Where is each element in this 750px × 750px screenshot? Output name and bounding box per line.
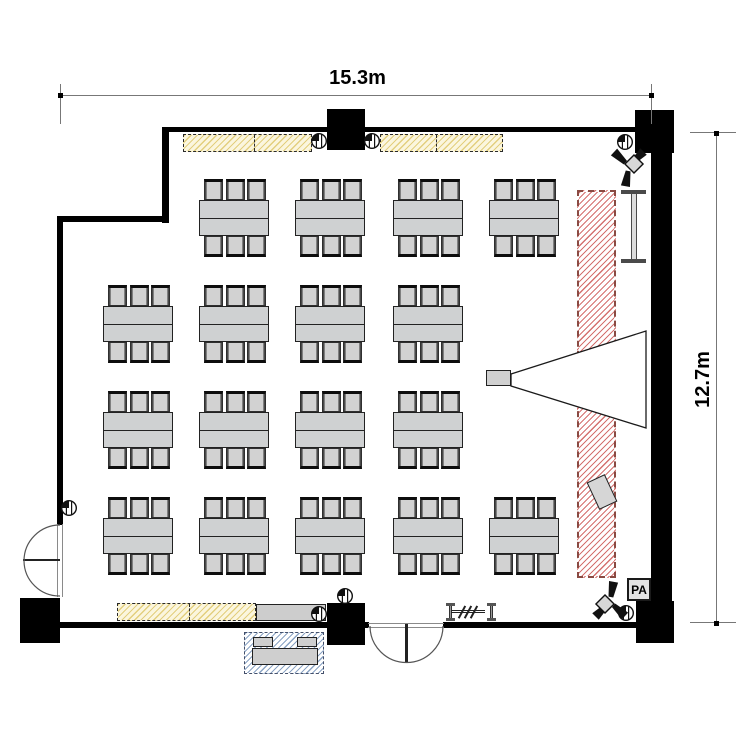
chair (322, 342, 341, 363)
chair (108, 448, 127, 469)
chair (204, 448, 223, 469)
chair (300, 179, 319, 200)
floor-plan: 15.3m 12.7m PA (0, 0, 750, 750)
chair (226, 448, 245, 469)
table (393, 200, 463, 236)
projector (486, 370, 511, 386)
table-group (393, 391, 463, 469)
left-exit-door-frame (62, 524, 63, 597)
chair (420, 285, 439, 306)
cabinet (380, 134, 503, 152)
chair (516, 179, 535, 200)
pa-rack-box: PA (627, 578, 651, 601)
chair (108, 497, 127, 518)
pillar (636, 601, 674, 643)
chair (300, 285, 319, 306)
table (489, 200, 559, 236)
chair (130, 342, 149, 363)
top-dimension-tick (60, 84, 61, 124)
main-entrance-door-leaf (405, 624, 407, 662)
service-table-top (252, 648, 318, 665)
chair (322, 179, 341, 200)
chair (343, 285, 362, 306)
table-group (295, 391, 365, 469)
chair (441, 179, 460, 200)
chair (441, 554, 460, 575)
chair (398, 236, 417, 257)
chair (441, 391, 460, 412)
table-group (295, 497, 365, 575)
pa-label: PA (631, 583, 647, 597)
pillar (327, 603, 365, 645)
chair (398, 285, 417, 306)
chair (494, 179, 513, 200)
chair (537, 554, 556, 575)
table (103, 518, 173, 554)
wall-outlet-icon (312, 134, 327, 149)
table-group (199, 179, 269, 257)
left-exit-door-swing-arc (24, 561, 60, 596)
chair (494, 236, 513, 257)
chair (247, 391, 266, 412)
chair (343, 448, 362, 469)
partition-post-cap (487, 603, 496, 606)
top-dimension-tick (651, 84, 652, 124)
table-group (295, 179, 365, 257)
chair (247, 236, 266, 257)
main-entrance-door-swing-arc (370, 626, 407, 663)
wall-segment (443, 622, 639, 628)
chair (516, 497, 535, 518)
chair (343, 391, 362, 412)
chair (204, 497, 223, 518)
left-exit-door-leaf (23, 559, 60, 561)
wall-outlet-icon (338, 589, 353, 604)
chair (108, 554, 127, 575)
dimension-end-dot (714, 621, 719, 626)
table-group (393, 497, 463, 575)
right-dimension-line (716, 133, 717, 623)
table (199, 412, 269, 448)
table-group (199, 285, 269, 363)
chair (247, 285, 266, 306)
wall-segment (651, 131, 672, 643)
chair (204, 554, 223, 575)
chair (151, 448, 170, 469)
side-counter (256, 604, 326, 621)
service-item (297, 637, 317, 647)
chair (516, 554, 535, 575)
wall-segment (162, 127, 169, 223)
cabinet-divider (254, 135, 255, 151)
chair (537, 497, 556, 518)
partition-post-cap (446, 618, 455, 621)
chair (226, 179, 245, 200)
chair (247, 342, 266, 363)
chair (226, 497, 245, 518)
table (295, 306, 365, 342)
chair (343, 179, 362, 200)
wall-segment (162, 127, 654, 132)
chair (537, 179, 556, 200)
chair (398, 391, 417, 412)
table-group (199, 391, 269, 469)
chair (204, 179, 223, 200)
chair (343, 554, 362, 575)
chair (108, 285, 127, 306)
table (199, 518, 269, 554)
table-group (103, 285, 173, 363)
chair (322, 448, 341, 469)
chair (204, 391, 223, 412)
left-exit-door-swing-arc (24, 525, 60, 561)
chair (108, 391, 127, 412)
main-entrance-door-swing-arc (407, 626, 444, 663)
chair (247, 179, 266, 200)
chair (151, 554, 170, 575)
chair (420, 497, 439, 518)
chair (226, 391, 245, 412)
chair (343, 342, 362, 363)
wall-outlet-icon (618, 135, 633, 150)
chair (420, 448, 439, 469)
table (393, 306, 463, 342)
chair (300, 391, 319, 412)
chair (420, 236, 439, 257)
chair (398, 179, 417, 200)
cabinet (183, 134, 312, 152)
service-item (253, 637, 273, 647)
chair (130, 285, 149, 306)
chair (226, 342, 245, 363)
pillar (635, 110, 674, 153)
chair (494, 497, 513, 518)
wall-segment (57, 216, 169, 222)
chair (398, 497, 417, 518)
top-dimension-line (61, 95, 652, 96)
chair (398, 554, 417, 575)
pillar (327, 109, 365, 150)
chair (226, 285, 245, 306)
chair (441, 342, 460, 363)
chair (420, 391, 439, 412)
chair (441, 285, 460, 306)
chair (300, 342, 319, 363)
table (295, 518, 365, 554)
chair (130, 554, 149, 575)
wall-segment (58, 622, 369, 628)
chair (441, 448, 460, 469)
wall-outlet-icon (619, 606, 634, 621)
dimension-end-dot (649, 93, 654, 98)
table (295, 412, 365, 448)
table-group (103, 391, 173, 469)
table-group (489, 179, 559, 257)
partition-post-cap (446, 603, 455, 606)
cabinet-divider (436, 135, 437, 151)
table (393, 412, 463, 448)
table-group (393, 179, 463, 257)
table-group (199, 497, 269, 575)
chair (151, 285, 170, 306)
partition-post-cap (487, 618, 496, 621)
chair (108, 342, 127, 363)
chair (151, 342, 170, 363)
chair (322, 236, 341, 257)
table-group (295, 285, 365, 363)
wall-outlet-icon (62, 501, 77, 516)
chair (151, 391, 170, 412)
whiteboard-stand (631, 194, 637, 259)
table (295, 200, 365, 236)
chair (494, 554, 513, 575)
wall-outlet-icon (365, 134, 380, 149)
table (103, 412, 173, 448)
table-group (393, 285, 463, 363)
chair (130, 448, 149, 469)
table-group (103, 497, 173, 575)
chair (204, 285, 223, 306)
chair (441, 497, 460, 518)
projection-screen (577, 190, 616, 578)
chair (516, 236, 535, 257)
height-dimension-label: 12.7m (692, 348, 715, 411)
chair (247, 554, 266, 575)
chair (322, 497, 341, 518)
table (199, 306, 269, 342)
chair (204, 236, 223, 257)
chair (151, 497, 170, 518)
dimension-end-dot (714, 131, 719, 136)
chair (226, 236, 245, 257)
width-dimension-label: 15.3m (300, 67, 415, 90)
table (393, 518, 463, 554)
speaker-icon (592, 581, 628, 620)
pillar (20, 598, 60, 643)
dimension-end-dot (58, 93, 63, 98)
wall-segment (57, 216, 63, 525)
cabinet (117, 603, 256, 621)
cabinet-divider (189, 604, 190, 620)
chair (420, 554, 439, 575)
chair (226, 554, 245, 575)
chair (300, 236, 319, 257)
chair (420, 342, 439, 363)
table-group (489, 497, 559, 575)
table (489, 518, 559, 554)
table (103, 306, 173, 342)
chair (343, 236, 362, 257)
chair (343, 497, 362, 518)
chair (537, 236, 556, 257)
chair (322, 285, 341, 306)
whiteboard-bottom-bar (621, 259, 646, 263)
chair (398, 448, 417, 469)
chair (300, 448, 319, 469)
chair (322, 391, 341, 412)
chair (398, 342, 417, 363)
chair (322, 554, 341, 575)
speaker-icon (611, 148, 647, 187)
chair (300, 497, 319, 518)
table (199, 200, 269, 236)
chair (247, 448, 266, 469)
chair (247, 497, 266, 518)
chair (130, 497, 149, 518)
chair (300, 554, 319, 575)
chair (204, 342, 223, 363)
chair (441, 236, 460, 257)
chair (420, 179, 439, 200)
chair (130, 391, 149, 412)
